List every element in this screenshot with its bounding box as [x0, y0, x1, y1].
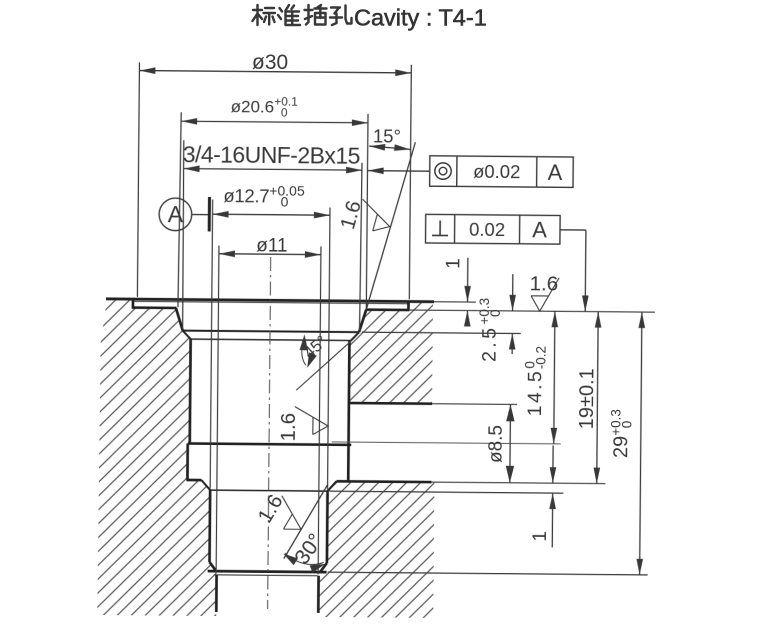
svg-text:ø30: ø30: [252, 51, 288, 74]
svg-text:1: 1: [443, 258, 464, 269]
svg-text:A: A: [547, 160, 562, 185]
svg-text:1.6: 1.6: [277, 413, 300, 442]
svg-text:Cavity : T4-1: Cavity : T4-1: [354, 5, 487, 31]
svg-text:15°: 15°: [373, 125, 401, 146]
svg-text:1: 1: [530, 531, 551, 542]
svg-text:ø0.02: ø0.02: [473, 161, 520, 182]
svg-text:3/4-16UNF-2Bx15: 3/4-16UNF-2Bx15: [183, 141, 360, 169]
svg-text:45°: 45°: [300, 332, 331, 362]
svg-text:19±0.1: 19±0.1: [576, 368, 599, 429]
svg-text:14.50-0.2: 14.50-0.2: [522, 346, 549, 417]
svg-text:1.6: 1.6: [530, 272, 559, 295]
svg-text:2.5+0.30: 2.5+0.30: [476, 298, 503, 362]
svg-text:0.02: 0.02: [469, 219, 505, 240]
svg-text:ø12.7+0.050: ø12.7+0.050: [223, 182, 305, 210]
svg-text:A: A: [532, 217, 547, 242]
svg-text:ø8.5: ø8.5: [486, 425, 507, 463]
svg-text:ø11: ø11: [256, 235, 288, 256]
svg-text:29+0.30: 29+0.30: [608, 409, 634, 458]
svg-text:ø20.6+0.10: ø20.6+0.10: [231, 94, 299, 120]
svg-text:A: A: [168, 201, 184, 227]
